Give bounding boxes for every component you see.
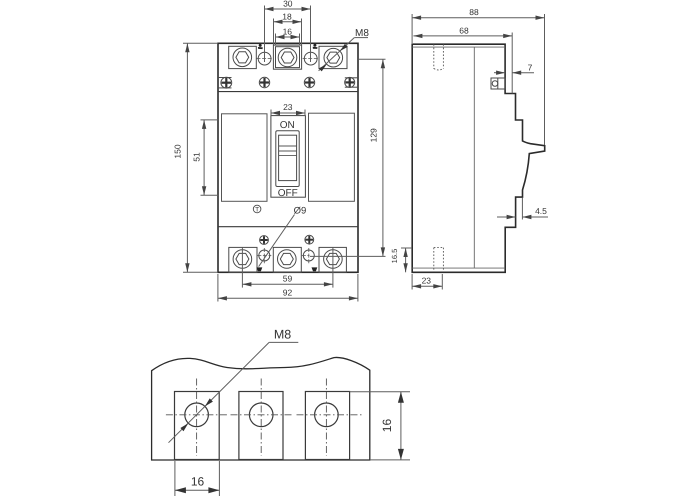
svg-text:68: 68: [459, 25, 469, 35]
svg-text:23: 23: [283, 102, 293, 112]
svg-text:OFF: OFF: [278, 188, 298, 199]
svg-text:150: 150: [173, 144, 183, 158]
svg-text:59: 59: [283, 274, 293, 284]
svg-text:Ø9: Ø9: [294, 206, 307, 217]
svg-text:92: 92: [283, 288, 293, 298]
svg-text:16: 16: [191, 475, 205, 489]
svg-text:18: 18: [282, 11, 292, 21]
svg-text:16: 16: [283, 27, 293, 37]
svg-text:16.5: 16.5: [390, 249, 399, 264]
svg-text:M8: M8: [355, 28, 369, 39]
svg-text:ON: ON: [280, 120, 295, 131]
svg-text:16: 16: [380, 419, 394, 433]
svg-text:88: 88: [469, 7, 479, 17]
svg-text:30: 30: [283, 0, 293, 9]
svg-text:23: 23: [422, 275, 432, 285]
svg-text:M8: M8: [274, 328, 291, 342]
svg-text:129: 129: [369, 128, 379, 142]
svg-text:7: 7: [528, 62, 533, 72]
svg-text:T: T: [255, 206, 259, 213]
svg-text:4.5: 4.5: [535, 206, 547, 216]
svg-text:51: 51: [191, 152, 201, 162]
